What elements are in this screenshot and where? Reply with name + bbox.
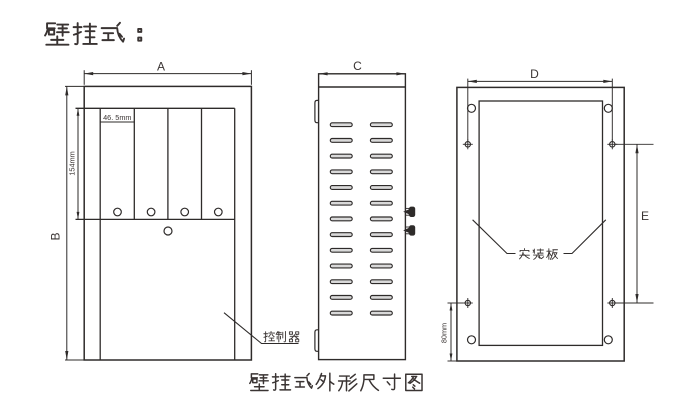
svg-text:154mm: 154mm [67,151,76,175]
svg-text:E: E [641,209,649,223]
svg-text:80mm: 80mm [439,323,448,343]
svg-text:D: D [530,67,539,81]
svg-text:A: A [157,59,165,73]
svg-text:46. 5mm: 46. 5mm [103,113,131,122]
svg-text:C: C [353,59,362,73]
svg-text:B: B [49,232,63,240]
